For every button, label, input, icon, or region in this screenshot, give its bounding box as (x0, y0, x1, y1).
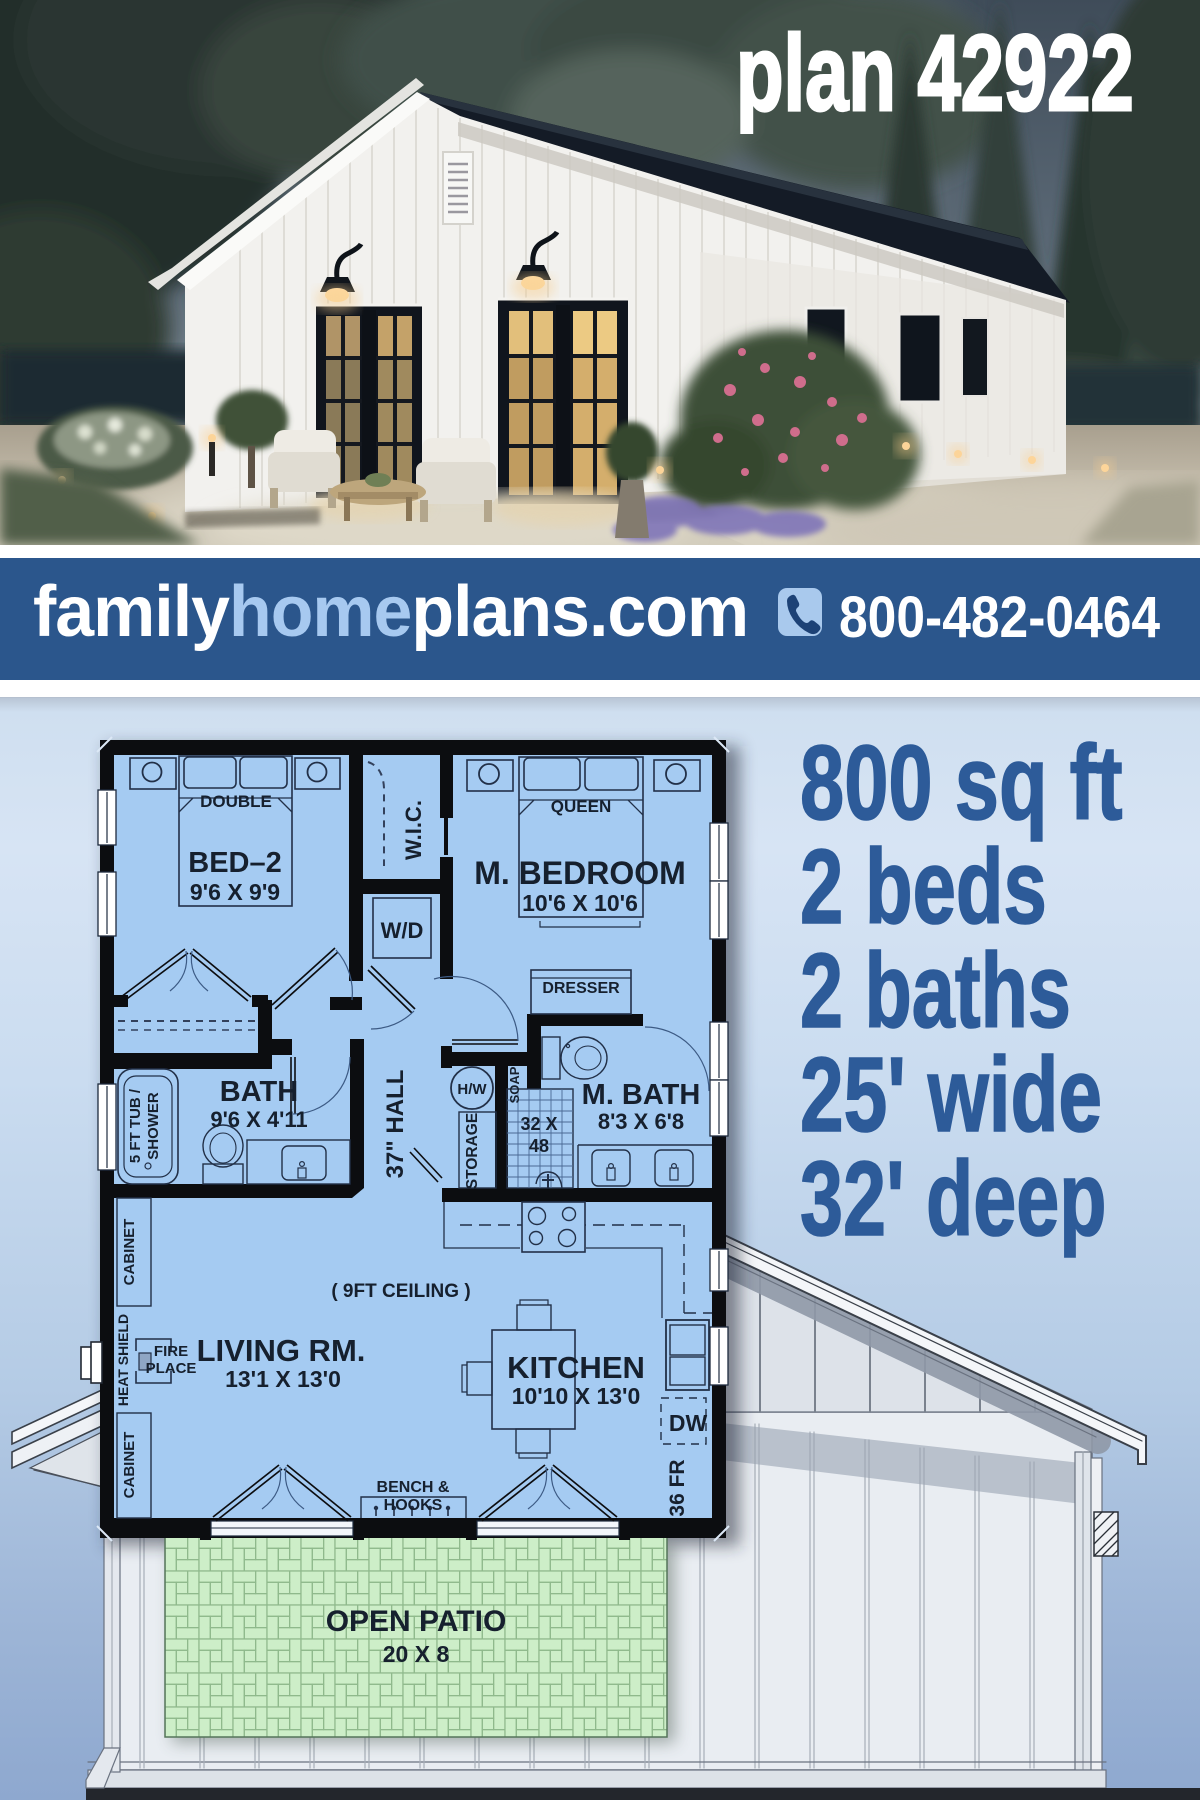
svg-text:LIVING RM.: LIVING RM. (197, 1333, 366, 1368)
svg-text:36 FR: 36 FR (666, 1459, 689, 1516)
svg-text:( 9FT CEILING ): ( 9FT CEILING ) (331, 1281, 470, 1302)
svg-text:M. BEDROOM: M. BEDROOM (474, 855, 686, 891)
svg-text:BENCH &: BENCH & (377, 1479, 450, 1496)
svg-text:CABINET: CABINET (121, 1219, 138, 1286)
svg-text:SHOWER: SHOWER (145, 1092, 162, 1160)
svg-text:DW: DW (669, 1410, 708, 1436)
svg-text:DOUBLE: DOUBLE (200, 792, 272, 811)
svg-text:10'10 X 13'0: 10'10 X 13'0 (512, 1383, 641, 1409)
svg-text:M. BATH: M. BATH (582, 1079, 701, 1111)
svg-text:20 X 8: 20 X 8 (383, 1641, 450, 1667)
svg-text:KITCHEN: KITCHEN (507, 1350, 645, 1385)
svg-text:HOOKS: HOOKS (384, 1497, 443, 1514)
svg-text:BED–2: BED–2 (188, 847, 282, 879)
svg-text:W.I.C.: W.I.C. (401, 800, 426, 860)
svg-text:QUEEN: QUEEN (551, 797, 611, 816)
svg-text:10'6 X 10'6: 10'6 X 10'6 (522, 890, 638, 916)
svg-text:32 X: 32 X (520, 1114, 557, 1134)
svg-text:PLACE: PLACE (146, 1360, 197, 1377)
svg-text:13'1 X 13'0: 13'1 X 13'0 (225, 1366, 341, 1392)
svg-text:CABINET: CABINET (121, 1432, 138, 1499)
svg-text:HEAT SHIELD: HEAT SHIELD (115, 1314, 131, 1406)
svg-text:BATH: BATH (220, 1076, 298, 1108)
svg-text:OPEN PATIO: OPEN PATIO (326, 1605, 507, 1638)
svg-text:9'6 X 9'9: 9'6 X 9'9 (190, 879, 280, 905)
svg-text:FIRE: FIRE (154, 1343, 188, 1360)
svg-text:37" HALL: 37" HALL (382, 1070, 409, 1179)
svg-text:48: 48 (529, 1136, 549, 1156)
svg-text:5 FT TUB /: 5 FT TUB / (127, 1088, 144, 1163)
svg-text:W/D: W/D (381, 918, 424, 943)
svg-text:SOAP: SOAP (507, 1066, 522, 1103)
svg-text:STORAGE: STORAGE (464, 1113, 481, 1189)
svg-text:8'3 X 6'8: 8'3 X 6'8 (598, 1109, 684, 1134)
svg-text:H/W: H/W (457, 1081, 487, 1098)
svg-text:DRESSER: DRESSER (542, 980, 620, 997)
svg-text:9'6 X 4'11: 9'6 X 4'11 (210, 1107, 307, 1132)
